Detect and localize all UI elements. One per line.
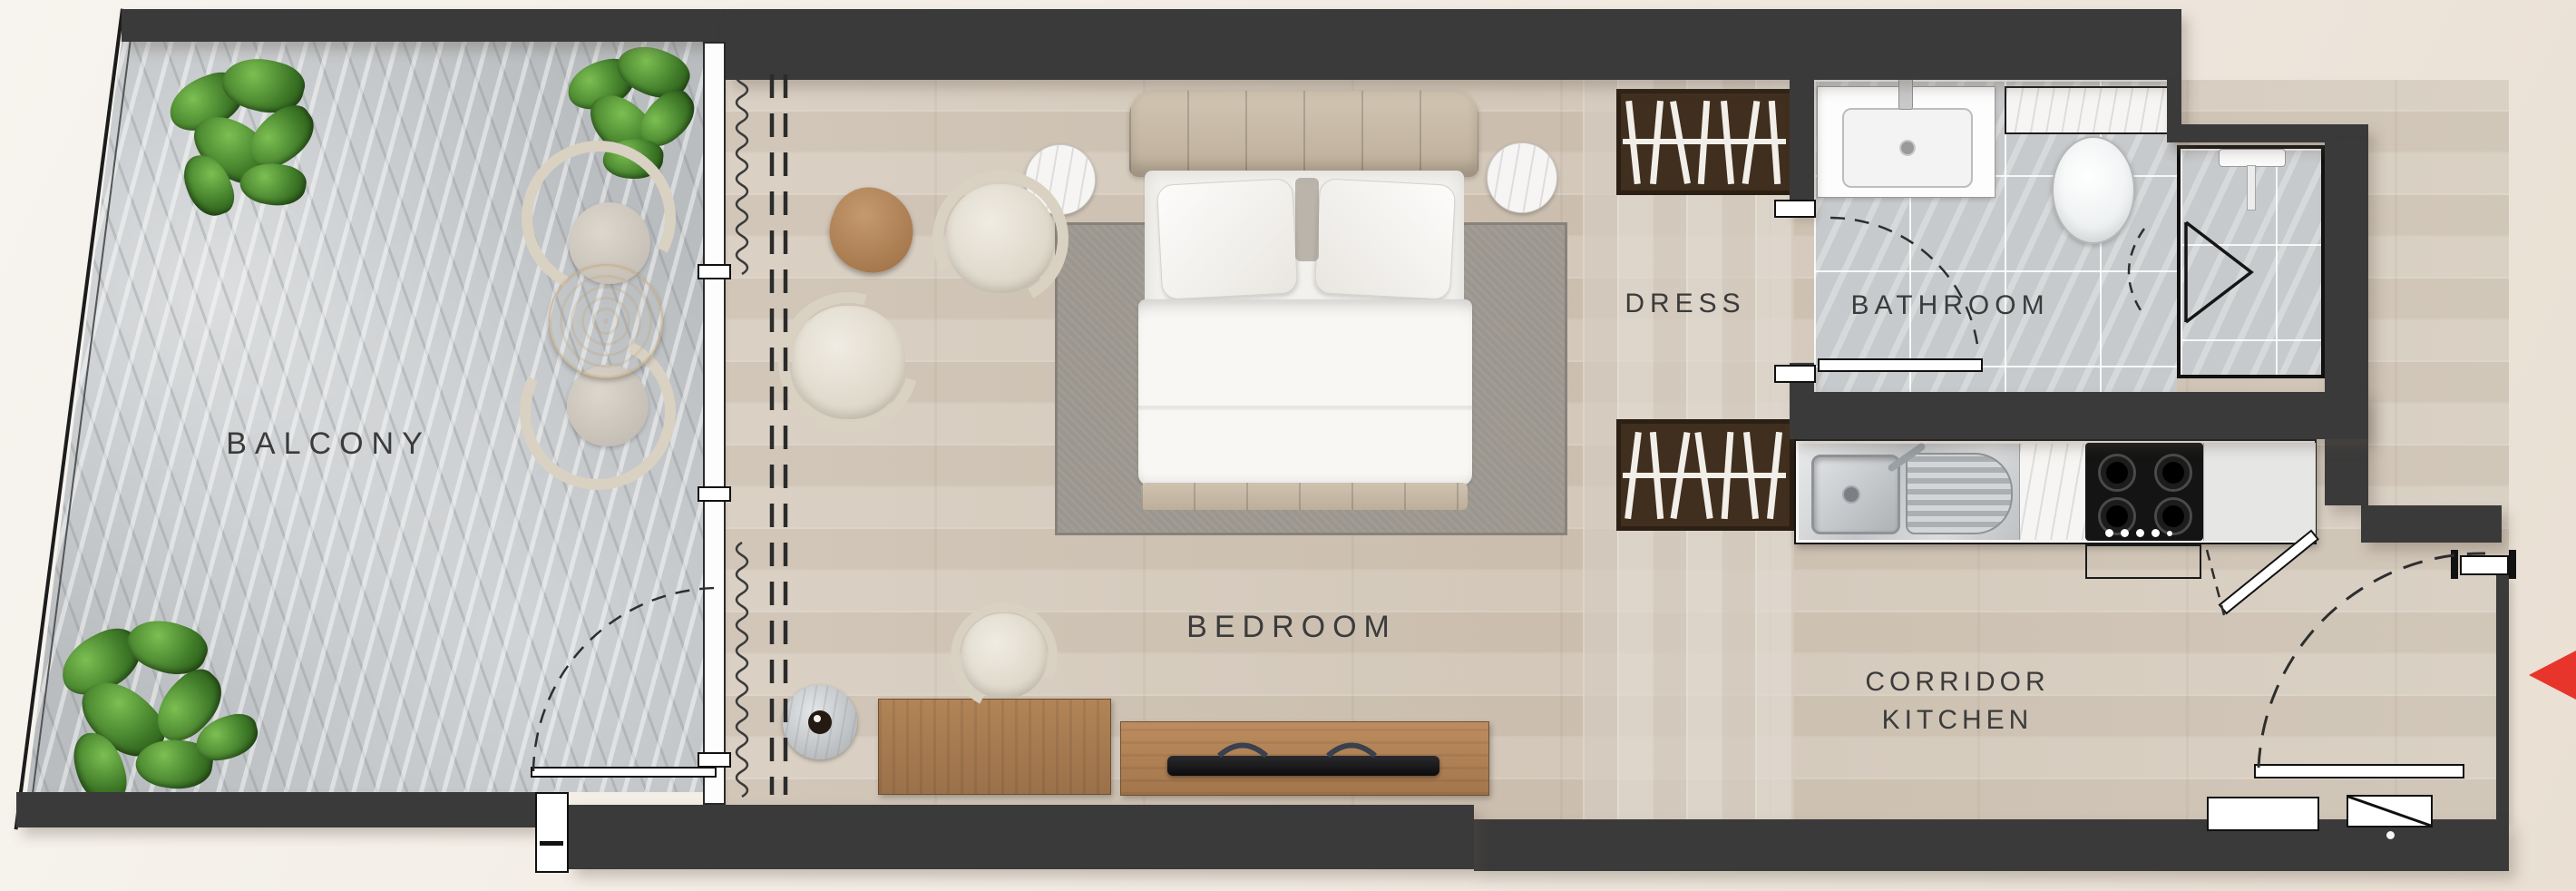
step-tick bbox=[540, 841, 563, 846]
bed-pillow-gap bbox=[1295, 178, 1319, 261]
kitchen-cabinet bbox=[2203, 443, 2316, 541]
door-jamb bbox=[2509, 550, 2516, 579]
desk bbox=[878, 699, 1111, 795]
toilet-icon bbox=[2052, 136, 2135, 244]
window-sill-mark bbox=[698, 264, 731, 279]
room-label-corridor-kitchen: CORRIDOR KITCHEN bbox=[1865, 667, 2049, 736]
desk-chair bbox=[951, 602, 1058, 710]
door-jamb bbox=[1774, 200, 1816, 218]
bed-pillow bbox=[1156, 178, 1298, 300]
room-label-bedroom: BEDROOM bbox=[1186, 610, 1397, 645]
counter-marble bbox=[2020, 444, 2085, 540]
wall-bottom-bedroom bbox=[569, 805, 1474, 869]
room-label-bathroom: BATHROOM bbox=[1850, 290, 2049, 321]
entrance-arrow-icon bbox=[2529, 651, 2576, 700]
door-jamb bbox=[2451, 550, 2458, 579]
wardrobe bbox=[1616, 89, 1794, 195]
wall-bathroom-left-upper bbox=[1790, 80, 1814, 216]
bed-headboard bbox=[1129, 91, 1478, 177]
armchair bbox=[778, 292, 919, 433]
corridor-label-line1: CORRIDOR bbox=[1865, 667, 2049, 698]
window-sill-mark bbox=[698, 486, 731, 502]
floorplan-page: { "rooms": { "balcony": { "label": "BALC… bbox=[0, 0, 2576, 891]
vanity-faucet-icon bbox=[1898, 77, 1913, 110]
room-label-balcony: BALCONY bbox=[226, 426, 431, 462]
toilet-shelf bbox=[2005, 86, 2172, 134]
entrance-threshold bbox=[2460, 555, 2509, 575]
wall-shower-top bbox=[2167, 124, 2368, 142]
armchair bbox=[932, 171, 1068, 307]
wall-panel bbox=[2207, 797, 2319, 831]
floor-lamp bbox=[783, 685, 857, 759]
wall-shower-right bbox=[2325, 142, 2368, 505]
wall-top-main bbox=[726, 9, 2181, 80]
wall-entry-top bbox=[2361, 505, 2502, 543]
shower-pipe bbox=[2247, 165, 2256, 211]
balcony-door-leaf bbox=[531, 767, 717, 778]
tv-icon bbox=[1167, 756, 1439, 776]
shower-valve-icon bbox=[2219, 149, 2286, 167]
bed-duvet bbox=[1138, 299, 1472, 485]
wardrobe bbox=[1616, 419, 1794, 531]
bed-pillow bbox=[1314, 178, 1456, 300]
wall-bathroom-bottom bbox=[1790, 392, 2368, 439]
window-sill-mark bbox=[698, 752, 731, 768]
wall-bottom-balcony bbox=[16, 792, 535, 827]
kitchen-counter bbox=[1794, 439, 2317, 544]
balcony-sliding-window bbox=[703, 42, 726, 805]
plant-icon bbox=[159, 50, 340, 231]
corridor-label-line2: KITCHEN bbox=[1865, 705, 2049, 736]
wall-dot bbox=[2386, 831, 2395, 839]
room-label-dress: DRESS bbox=[1625, 289, 1745, 319]
nightstand bbox=[1487, 142, 1557, 213]
entrance-door-leaf bbox=[2254, 764, 2464, 778]
counter-edge-outline bbox=[2085, 544, 2201, 579]
wall-step-block bbox=[535, 792, 569, 873]
wall-right-thin bbox=[2496, 575, 2509, 821]
wall-panel-shaft bbox=[2347, 795, 2433, 827]
bed-footboard bbox=[1141, 483, 1468, 510]
balcony-table bbox=[549, 264, 663, 378]
gas-hob-icon bbox=[2085, 443, 2203, 541]
door-jamb bbox=[1774, 365, 1816, 383]
wall-top-balcony bbox=[122, 9, 726, 42]
bathroom-door-leaf bbox=[1818, 358, 1983, 372]
